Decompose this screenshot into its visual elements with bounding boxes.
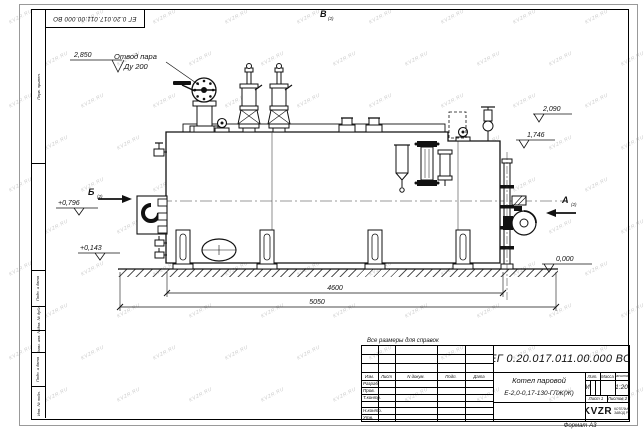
margin-field-vzam-inv: Взам. инв. №: [31, 330, 45, 353]
lit-label: Лит.: [585, 372, 600, 380]
margin-field-perv-primen: Перв. примен.: [31, 9, 45, 164]
margin-field-inv-dubl: Инв. № дубл.: [31, 305, 45, 331]
frame-layer: Перв. примен. Подп. и дата Инв. № дубл. …: [0, 0, 644, 430]
reference-note: Все размеры для справок: [365, 336, 487, 345]
col-list: Лист: [378, 372, 395, 380]
margin-field-podp-data-1: Подп. и дата: [31, 270, 45, 307]
grid-line: [437, 345, 438, 421]
title-doc-number: ЕГ 0.20.017.011.00.000 ВО: [493, 345, 628, 372]
grid-line: [465, 345, 466, 421]
drawing-sheet: KVZR.RUKVZR.RUKVZR.RUKVZR.RUKVZR.RUKVZR.…: [0, 0, 644, 430]
row-tkontr: Т.контр.: [361, 394, 397, 401]
grid-line: [595, 380, 596, 395]
product-name-line2: Е-2,0-0,17-130-ГЛЖ(Ж): [493, 387, 585, 400]
col-izm: Изм.: [361, 372, 378, 380]
sheet-number: Лист 1: [585, 395, 607, 402]
grid-line: [361, 401, 493, 402]
mass-label: Масса: [600, 372, 615, 380]
margin-field-podp-data-2: Подп. и дата: [31, 352, 45, 387]
doc-number-rotated-box: ЕГ 0.20.017.011.00.000 ВО: [45, 9, 145, 28]
margin-field-inv-podl: Инв. № подл.: [31, 386, 45, 421]
sheets-total: Листов 2: [607, 395, 628, 402]
grid-line: [590, 380, 591, 395]
row-razrab: Разраб.: [361, 380, 397, 387]
company-name: КОТЕЛЬНЫЙ ЗАВОД РЭП: [614, 408, 628, 416]
scale-label: Масштаб: [615, 372, 628, 380]
product-name-line1: Котел паровой: [493, 374, 585, 387]
scale-value: 1:20: [615, 380, 628, 395]
lit-value: И: [585, 380, 590, 395]
col-doc: N докум.: [395, 372, 437, 380]
logo-text: KVZR: [585, 406, 612, 417]
grid-line: [361, 354, 493, 355]
col-data: Дата: [465, 372, 493, 380]
row-utv: Утв.: [361, 414, 397, 421]
company-logo: KVZR КОТЕЛЬНЫЙ ЗАВОД РЭП: [585, 402, 628, 421]
grid-line: [361, 363, 493, 364]
col-podp: Подп.: [437, 372, 465, 380]
row-nkontr: Н.контр.: [361, 407, 397, 414]
margin-strip-line: [45, 9, 46, 418]
format-note: Формат А3: [530, 421, 630, 430]
row-prov: Пров.: [361, 387, 397, 394]
